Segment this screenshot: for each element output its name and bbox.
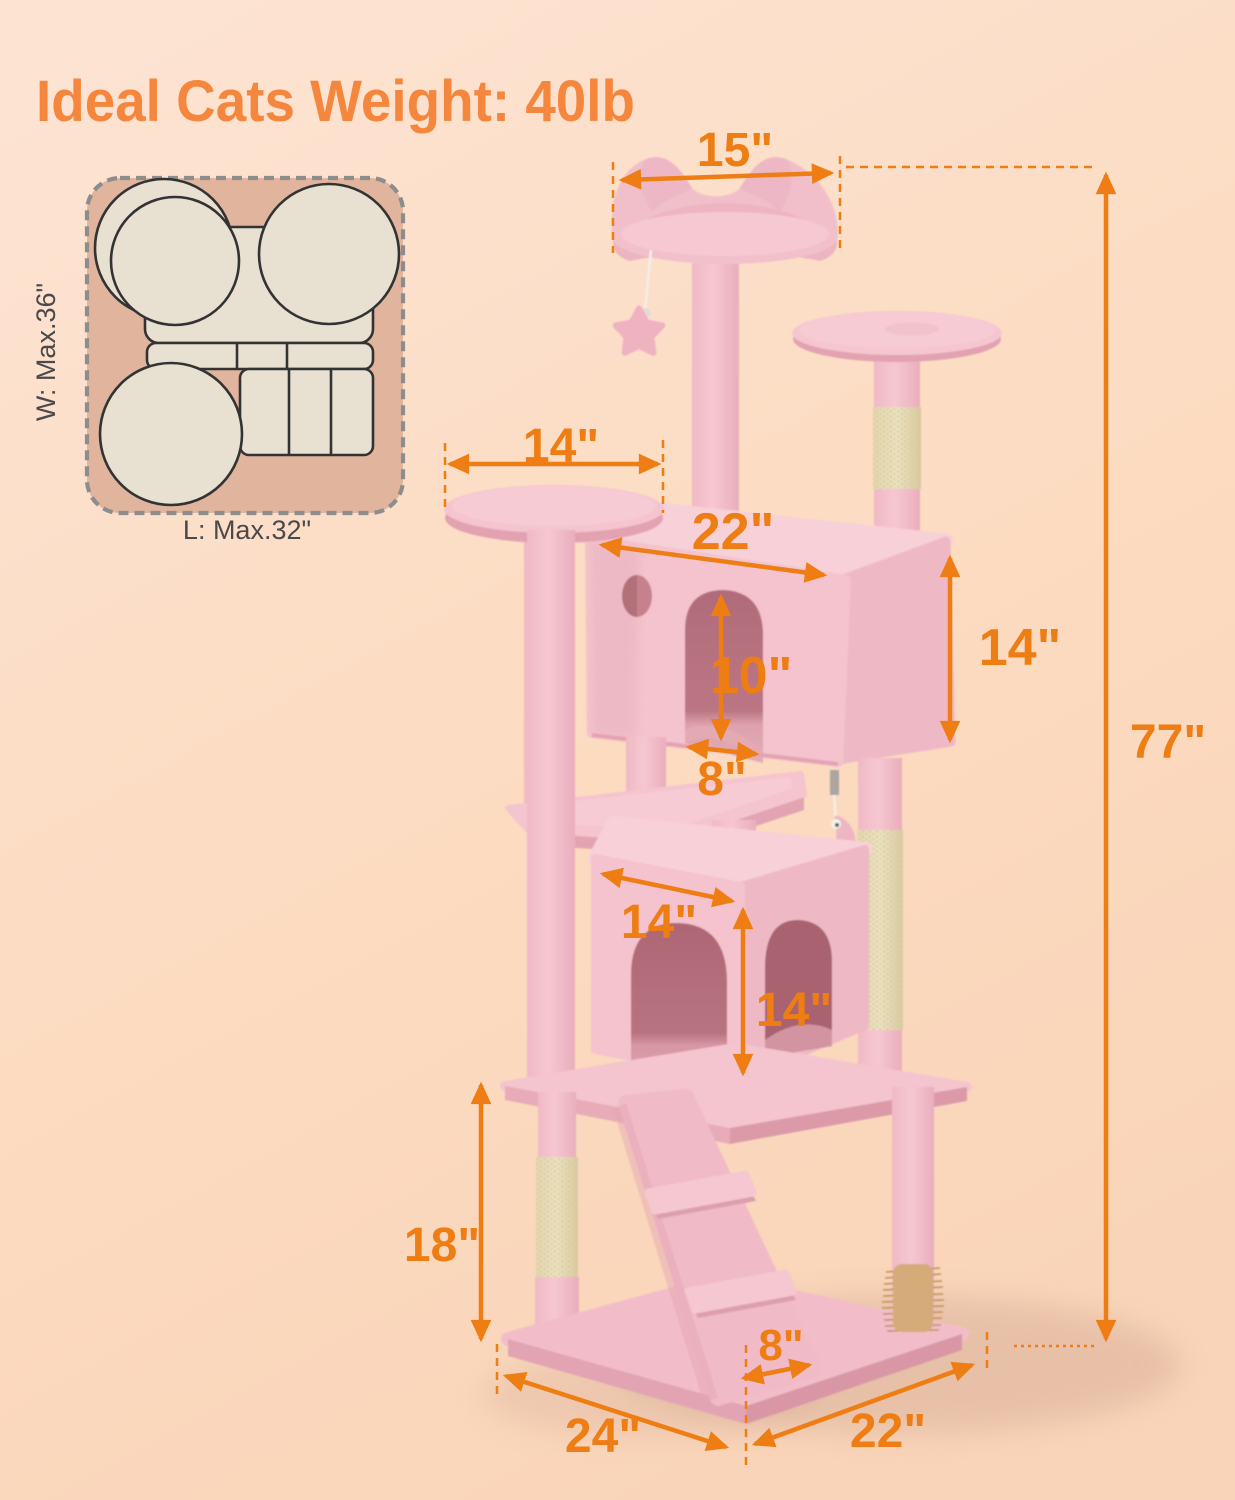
svg-text:15": 15" [697, 124, 773, 177]
svg-text:Ideal Cats Weight: 40lb: Ideal Cats Weight: 40lb [36, 69, 635, 134]
svg-text:14": 14" [523, 420, 599, 473]
svg-text:14": 14" [621, 896, 697, 949]
svg-text:10": 10" [710, 647, 793, 705]
svg-text:8": 8" [697, 753, 746, 806]
svg-text:77": 77" [1130, 716, 1206, 769]
svg-text:22": 22" [692, 503, 775, 561]
svg-text:14": 14" [756, 984, 832, 1037]
svg-text:14": 14" [979, 619, 1062, 677]
svg-text:L: Max.32": L: Max.32" [183, 515, 311, 545]
svg-text:W: Max.36": W: Max.36" [31, 283, 61, 421]
svg-text:8": 8" [758, 1321, 803, 1370]
svg-text:18": 18" [404, 1219, 480, 1272]
svg-text:22": 22" [850, 1405, 926, 1458]
svg-text:24": 24" [565, 1410, 641, 1463]
